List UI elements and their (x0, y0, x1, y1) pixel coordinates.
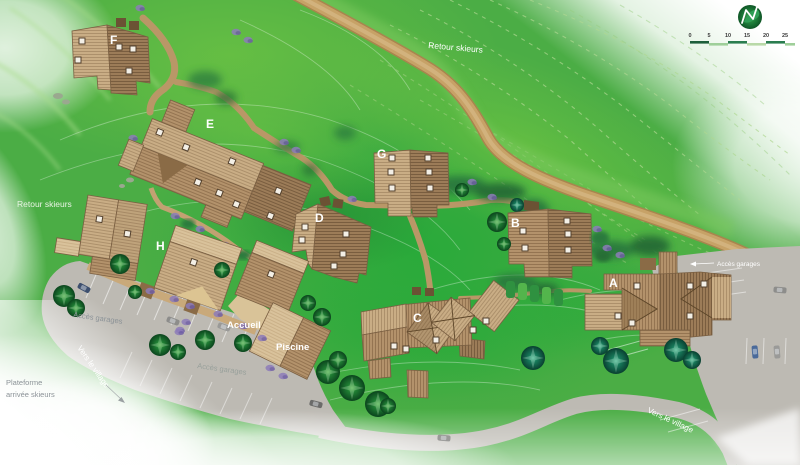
svg-text:B: B (511, 216, 520, 230)
svg-text:Retour skieurs: Retour skieurs (17, 199, 72, 209)
svg-text:G: G (377, 147, 386, 161)
svg-text:C: C (413, 311, 422, 325)
svg-text:arrivée skieurs: arrivée skieurs (6, 390, 55, 399)
svg-text:Accès garages: Accès garages (717, 261, 761, 268)
svg-text:Piscine: Piscine (276, 342, 309, 353)
svg-text:20: 20 (763, 33, 769, 39)
svg-text:A: A (609, 276, 618, 290)
svg-text:F: F (110, 33, 117, 47)
svg-text:10: 10 (725, 33, 731, 39)
svg-text:Plateforme: Plateforme (6, 378, 42, 387)
svg-text:D: D (315, 211, 324, 225)
svg-text:Accueil: Accueil (227, 320, 261, 331)
svg-text:H: H (156, 239, 165, 253)
svg-text:25: 25 (782, 33, 788, 39)
svg-text:0: 0 (688, 33, 691, 39)
svg-text:5: 5 (707, 33, 710, 39)
svg-text:E: E (206, 117, 214, 131)
svg-text:15: 15 (744, 33, 750, 39)
